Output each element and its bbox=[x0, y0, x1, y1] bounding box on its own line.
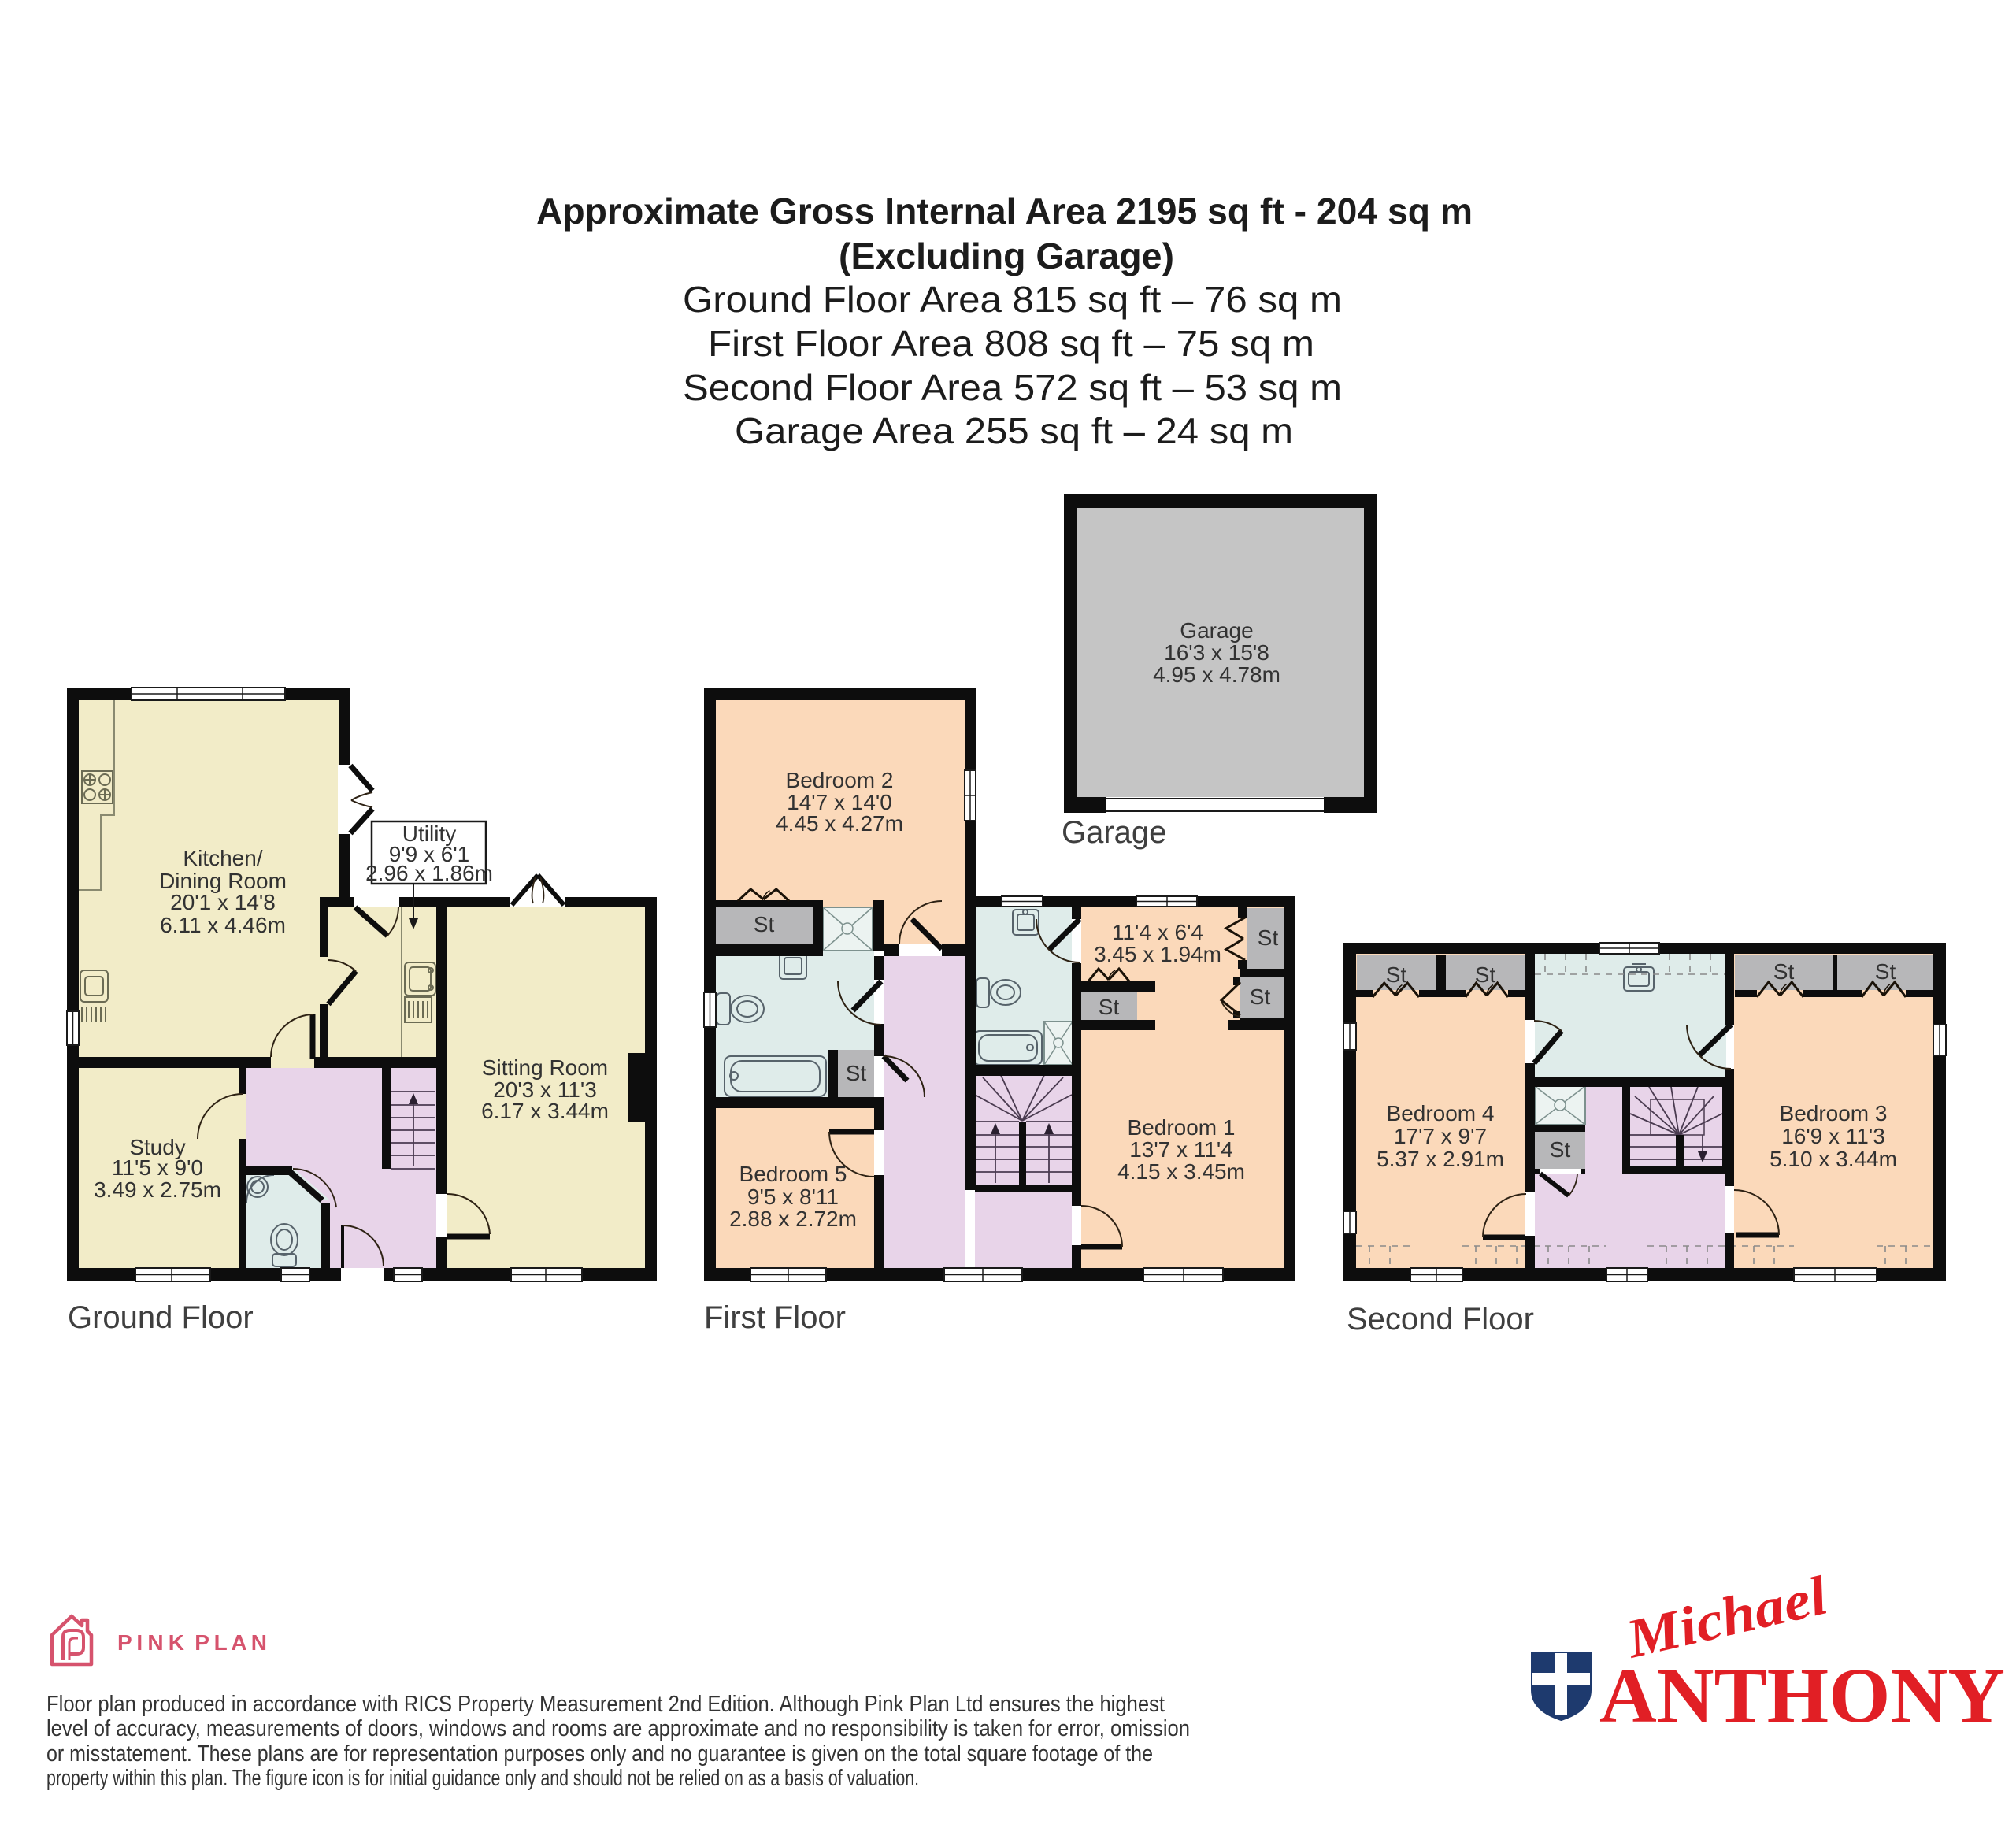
svg-text:St: St bbox=[1773, 959, 1795, 984]
svg-text:ANTHONY: ANTHONY bbox=[1599, 1652, 2005, 1739]
svg-text:First Floor Area 808 sq ft – 7: First Floor Area 808 sq ft – 75 sq m bbox=[708, 323, 1314, 364]
svg-text:Ground Floor Area 815 sq ft –: Ground Floor Area 815 sq ft – 76 sq m bbox=[683, 279, 1342, 320]
svg-text:St: St bbox=[1875, 959, 1896, 984]
svg-text:St: St bbox=[754, 912, 775, 936]
svg-text:6.17 x 3.44m: 6.17 x 3.44m bbox=[481, 1099, 609, 1123]
svg-text:4.95 x 4.78m: 4.95 x 4.78m bbox=[1153, 662, 1280, 687]
svg-text:Sitting Room: Sitting Room bbox=[482, 1055, 608, 1080]
svg-text:Garage: Garage bbox=[1062, 815, 1166, 850]
svg-text:St: St bbox=[1475, 962, 1496, 987]
svg-text:4.45 x 4.27m: 4.45 x 4.27m bbox=[776, 811, 903, 836]
svg-text:St: St bbox=[846, 1061, 867, 1085]
svg-text:Bedroom 2: Bedroom 2 bbox=[786, 768, 894, 792]
svg-text:Bedroom 1: Bedroom 1 bbox=[1128, 1115, 1236, 1140]
svg-text:Approximate Gross Internal Are: Approximate Gross Internal Area 2195 sq … bbox=[536, 191, 1473, 232]
svg-text:Garage Area 255 sq ft – 24 sq: Garage Area 255 sq ft – 24 sq m bbox=[735, 410, 1293, 451]
svg-text:5.37 x 2.91m: 5.37 x 2.91m bbox=[1377, 1147, 1504, 1171]
svg-text:Second Floor Area 572 sq ft –: Second Floor Area 572 sq ft – 53 sq m bbox=[683, 367, 1342, 408]
svg-text:4.15 x 3.45m: 4.15 x 3.45m bbox=[1117, 1159, 1245, 1184]
svg-text:or misstatement. These plans a: or misstatement. These plans are for rep… bbox=[46, 1741, 1153, 1767]
svg-text:St: St bbox=[1099, 995, 1120, 1019]
svg-text:St: St bbox=[1258, 925, 1279, 950]
svg-text:11'4 x 6'4: 11'4 x 6'4 bbox=[1112, 920, 1203, 944]
svg-text:St: St bbox=[1386, 962, 1407, 987]
svg-text:20'1 x 14'8: 20'1 x 14'8 bbox=[170, 890, 276, 914]
svg-text:(Excluding Garage): (Excluding Garage) bbox=[839, 235, 1174, 276]
svg-text:16'3 x 15'8: 16'3 x 15'8 bbox=[1164, 640, 1269, 665]
svg-text:Bedroom 3: Bedroom 3 bbox=[1780, 1101, 1888, 1125]
svg-text:level of accuracy, measurement: level of accuracy, measurements of doors… bbox=[46, 1716, 1190, 1741]
svg-text:Ground Floor: Ground Floor bbox=[68, 1300, 254, 1335]
svg-text:St: St bbox=[1550, 1137, 1571, 1162]
svg-text:Second Floor: Second Floor bbox=[1347, 1302, 1534, 1337]
svg-text:5.10 x 3.44m: 5.10 x 3.44m bbox=[1770, 1147, 1897, 1171]
svg-text:9'5 x 8'11: 9'5 x 8'11 bbox=[747, 1185, 839, 1209]
svg-text:Garage: Garage bbox=[1180, 618, 1253, 643]
svg-text:2.96 x 1.86m: 2.96 x 1.86m bbox=[365, 861, 493, 885]
svg-text:St: St bbox=[1250, 984, 1271, 1009]
svg-text:6.11 x 4.46m: 6.11 x 4.46m bbox=[160, 913, 286, 937]
svg-text:Bedroom 5: Bedroom 5 bbox=[739, 1162, 847, 1186]
svg-text:P I N K P L A N: P I N K P L A N bbox=[117, 1630, 267, 1655]
svg-text:Floor plan produced in accorda: Floor plan produced in accordance with R… bbox=[46, 1692, 1165, 1717]
svg-text:3.49 x 2.75m: 3.49 x 2.75m bbox=[94, 1177, 221, 1202]
svg-text:2.88 x 2.72m: 2.88 x 2.72m bbox=[729, 1207, 857, 1231]
svg-text:Kitchen/: Kitchen/ bbox=[183, 846, 262, 870]
svg-text:First Floor: First Floor bbox=[704, 1300, 846, 1335]
svg-text:17'7 x 9'7: 17'7 x 9'7 bbox=[1394, 1124, 1487, 1148]
svg-text:3.45 x 1.94m: 3.45 x 1.94m bbox=[1094, 942, 1221, 966]
svg-text:16'9 x 11'3: 16'9 x 11'3 bbox=[1781, 1124, 1885, 1148]
svg-text:11'5 x 9'0: 11'5 x 9'0 bbox=[112, 1155, 203, 1180]
svg-text:13'7 x 11'4: 13'7 x 11'4 bbox=[1129, 1137, 1233, 1162]
svg-text:property within this plan. The: property within this plan. The figure ic… bbox=[46, 1766, 919, 1791]
svg-text:Bedroom 4: Bedroom 4 bbox=[1387, 1101, 1495, 1125]
